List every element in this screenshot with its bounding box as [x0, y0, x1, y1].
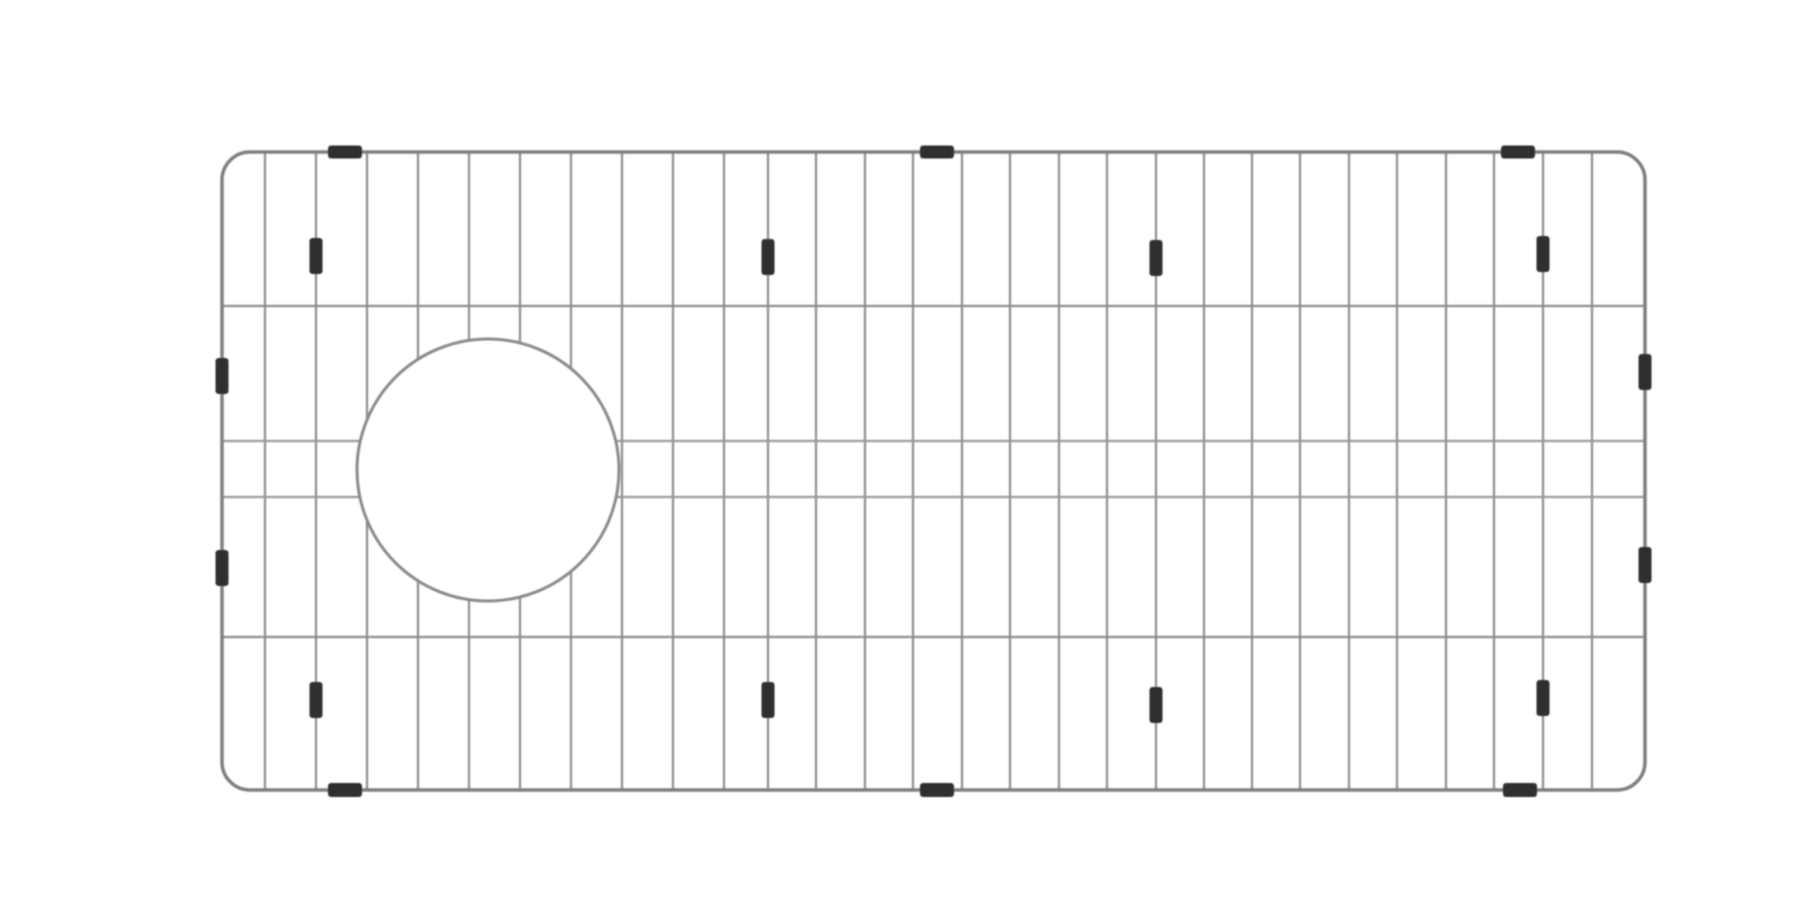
- sink-grid-drawing: [0, 0, 1800, 915]
- product-image-canvas: [0, 0, 1800, 915]
- foot-left-frame: [216, 550, 229, 586]
- foot-wire-upper: [310, 238, 323, 274]
- foot-bottom-frame: [1503, 783, 1537, 797]
- foot-top-frame: [920, 146, 954, 159]
- foot-wire-lower: [1150, 687, 1163, 723]
- foot-wire-lower: [310, 682, 323, 718]
- foot-wire-lower: [1537, 680, 1550, 716]
- foot-bottom-frame: [920, 783, 954, 797]
- foot-top-frame: [1501, 146, 1535, 159]
- foot-wire-upper: [1150, 240, 1163, 276]
- foot-top-frame: [328, 146, 362, 159]
- foot-left-frame: [216, 358, 229, 394]
- foot-bottom-frame: [328, 783, 362, 797]
- foot-wire-lower: [762, 682, 775, 718]
- drain-hole-cutout: [357, 339, 619, 601]
- foot-right-frame: [1639, 354, 1652, 390]
- foot-wire-upper: [762, 239, 775, 275]
- foot-right-frame: [1639, 547, 1652, 583]
- foot-wire-upper: [1537, 236, 1550, 272]
